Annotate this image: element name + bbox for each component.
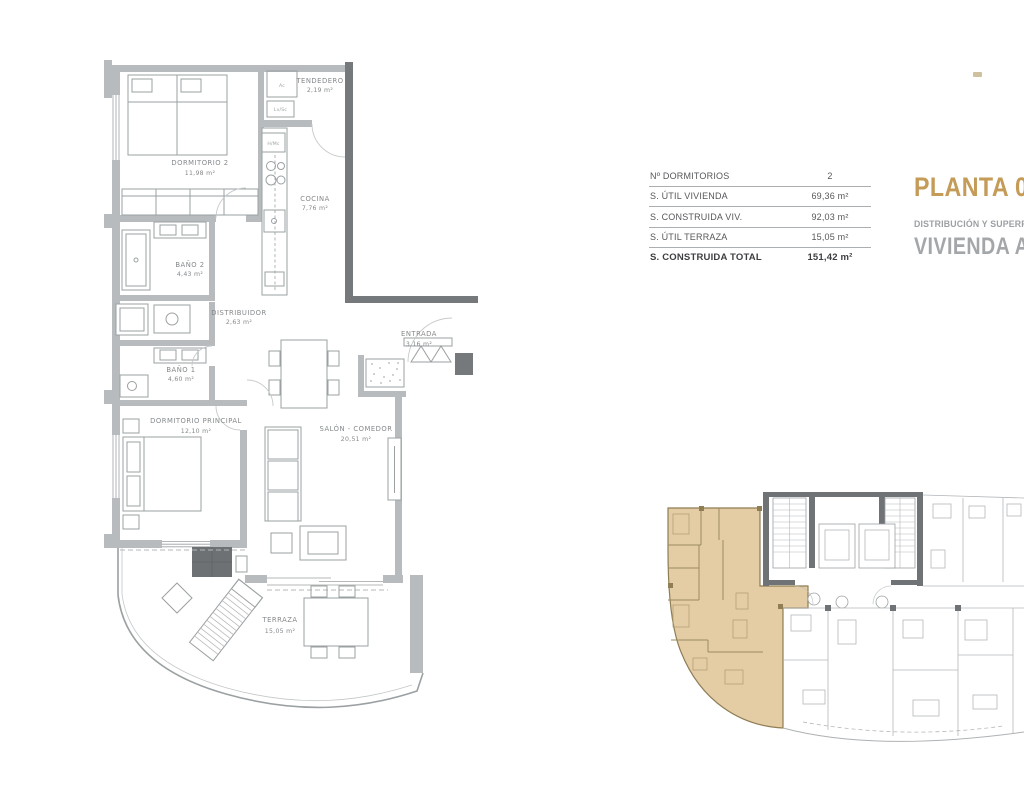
furniture-salon: [247, 340, 401, 560]
row-value: 15,05 m²: [789, 232, 871, 242]
table-row: S. ÚTIL TERRAZA 15,05 m²: [649, 228, 871, 249]
svg-text:4,60 m²: 4,60 m²: [168, 376, 195, 383]
svg-text:15,05 m²: 15,05 m²: [265, 628, 296, 635]
furniture-bano-2: [122, 222, 206, 290]
furniture-cocina: [262, 128, 287, 295]
label-h-mc: H/Mc: [267, 141, 280, 147]
label-dormitorio-2: DORMITORIO 2: [171, 159, 228, 167]
furniture-entrada: [366, 318, 452, 387]
unit-tag-circle: [836, 596, 848, 608]
label-bano-1: BAÑO 1: [166, 365, 195, 374]
label-tendedero: TENDEDERO: [295, 77, 343, 85]
unit-title: VIVIENDA A: [914, 235, 1024, 259]
label-dormitorio-principal: DORMITORIO PRINCIPAL: [150, 417, 242, 425]
table-row: S. CONSTRUIDA VIV. 92,03 m²: [649, 207, 871, 228]
svg-text:11,98 m²: 11,98 m²: [185, 170, 216, 177]
furniture-aseo: [116, 304, 190, 335]
label-lv-sc: Lv/Sc: [274, 107, 288, 113]
unit-tag-circle: [808, 593, 820, 605]
table-row-total: S. CONSTRUIDA TOTAL 151,42 m²: [649, 248, 871, 268]
row-value: 151,42 m²: [789, 252, 871, 263]
label-cocina: COCINA: [300, 195, 330, 203]
svg-text:3,16 m²: 3,16 m²: [406, 341, 433, 348]
unit-tag-circle: [876, 596, 888, 608]
row-label: S. CONSTRUIDA TOTAL: [649, 252, 789, 263]
svg-text:2,19 m²: 2,19 m²: [307, 87, 334, 94]
logo-fragment: [973, 72, 982, 77]
row-value: 92,03 m²: [789, 212, 871, 222]
svg-text:4,43 m²: 4,43 m²: [177, 271, 204, 278]
label-entrada: ENTRADA: [401, 330, 437, 338]
brochure-sheet: DORMITORIO 2 11,98 m² TENDEDERO 2,19 m² …: [0, 0, 1024, 800]
key-plan: [663, 490, 1024, 748]
furniture-dormitorio-2: [122, 75, 258, 218]
elevator-shaft: [859, 524, 895, 568]
svg-text:12,10 m²: 12,10 m²: [181, 428, 212, 435]
label-salon-comedor: SALÓN - COMEDOR: [320, 424, 393, 433]
row-label: S. ÚTIL TERRAZA: [649, 232, 789, 242]
table-row: S. ÚTIL VIVIENDA 69,36 m²: [649, 187, 871, 208]
row-label: Nº DORMITORIOS: [649, 171, 789, 181]
page-title: PLANTA 02: [914, 174, 1024, 201]
elevator-shaft: [819, 524, 855, 568]
label-terraza: TERRAZA: [261, 616, 297, 624]
svg-text:20,51 m²: 20,51 m²: [341, 436, 372, 443]
label-ac: Ac: [279, 83, 285, 89]
label-distribuidor: DISTRIBUIDOR: [211, 309, 266, 317]
row-label: S. ÚTIL VIVIENDA: [649, 191, 789, 201]
label-bano-2: BAÑO 2: [175, 260, 204, 269]
page-subtitle: DISTRIBUCIÓN Y SUPERFICIES: [914, 220, 1024, 230]
row-value: 69,36 m²: [789, 191, 871, 201]
party-walls: [345, 62, 478, 375]
surface-summary-table: Nº DORMITORIOS 2 S. ÚTIL VIVIENDA 69,36 …: [649, 166, 871, 268]
svg-text:7,76 m²: 7,76 m²: [302, 205, 329, 212]
main-floor-plan: DORMITORIO 2 11,98 m² TENDEDERO 2,19 m² …: [48, 50, 493, 740]
row-label: S. CONSTRUIDA VIV.: [649, 212, 789, 222]
svg-text:2,63 m²: 2,63 m²: [226, 319, 253, 326]
table-row: Nº DORMITORIOS 2: [649, 166, 871, 187]
row-value: 2: [789, 171, 871, 181]
